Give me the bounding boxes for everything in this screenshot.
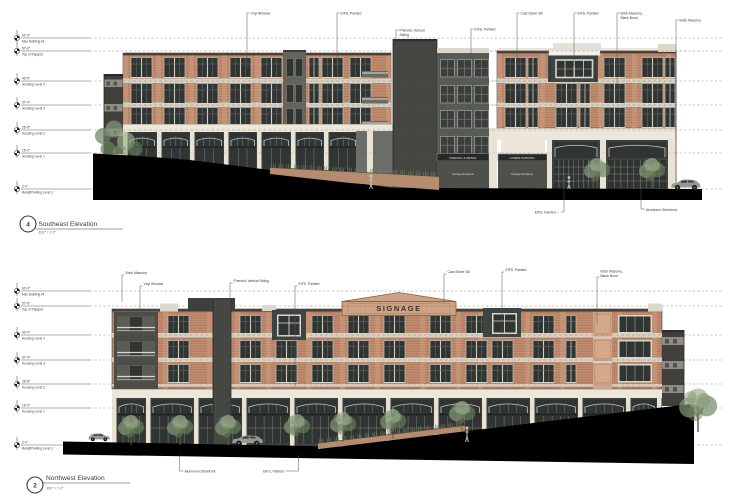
svg-text:3/32″ = 1′-0″: 3/32″ = 1′-0″ [46,487,64,491]
svg-text:2′-0″: 2′-0″ [22,441,29,445]
svg-text:Garage Entrance: Garage Entrance [452,172,474,176]
svg-text:Housing Level 2: Housing Level 2 [22,386,45,390]
svg-text:Brick Masonry: Brick Masonry [680,19,702,23]
svg-text:Housing Level 2: Housing Level 2 [22,132,45,136]
svg-text:Retail/Parking Level 1: Retail/Parking Level 1 [22,447,53,451]
svg-text:Northwest Elevation: Northwest Elevation [46,475,105,482]
svg-text:37′-4″: 37′-4″ [22,356,31,360]
svg-text:2′-0″: 2′-0″ [22,185,29,189]
svg-text:Black Bond: Black Bond [601,274,618,278]
svg-text:43′-0″: 43′-0″ [22,77,31,81]
svg-text:Aluminum Storefront: Aluminum Storefront [646,208,677,212]
svg-text:26′-8″: 26′-8″ [22,380,31,384]
svg-text:26′-8″: 26′-8″ [22,126,31,130]
svg-text:Cast Stone Sill: Cast Stone Sill [521,12,543,16]
svg-text:Housing Level 3: Housing Level 3 [22,362,45,366]
svg-text:EIFS, Painted: EIFS, Painted [341,12,362,16]
svg-text:Vnyl Window: Vnyl Window [251,12,271,16]
svg-text:43′-0″: 43′-0″ [22,331,31,335]
svg-text:60′-0″: 60′-0″ [22,287,31,291]
svg-text:EIFS, Painted: EIFS, Painted [578,12,599,16]
svg-text:Housing Level 4: Housing Level 4 [22,83,45,87]
svg-text:Brick Masonry,: Brick Masonry, [621,12,643,16]
svg-text:16′-0″: 16′-0″ [22,404,31,408]
svg-text:37′-4″: 37′-4″ [22,101,31,105]
svg-text:EIFS, Painted: EIFS, Painted [475,28,496,32]
svg-text:Black Bond: Black Bond [621,16,638,20]
svg-text:Garage Entrance: Garage Entrance [511,172,533,176]
svg-text:Vnyl Window: Vnyl Window [144,282,164,286]
svg-text:Retail/Parking Level 1: Retail/Parking Level 1 [22,191,53,195]
svg-text:2: 2 [33,483,37,490]
svg-text:EIFS, Painted: EIFS, Painted [506,268,527,272]
svg-text:Housing Level 1: Housing Level 1 [22,155,45,159]
svg-text:4: 4 [26,222,30,229]
svg-text:Brick Masonry: Brick Masonry [126,271,148,275]
svg-text:Brick Masonry,: Brick Masonry, [601,270,623,274]
svg-text:Max Building Ht: Max Building Ht [22,40,44,44]
svg-text:Phenolic Vertical Siding: Phenolic Vertical Siding [234,279,270,283]
svg-text:EIFS, Painted ←: EIFS, Painted ← [535,211,560,215]
svg-text:PARKING & RETAIL: PARKING & RETAIL [449,156,477,160]
svg-text:Cast Stone Sill: Cast Stone Sill [448,270,470,274]
svg-text:3/32″ = 1′-0″: 3/32″ = 1′-0″ [39,231,57,235]
svg-text:57′-6″: 57′-6″ [22,47,31,51]
svg-text:SIGNAGE: SIGNAGE [376,304,421,313]
svg-text:Housing Level 4: Housing Level 4 [22,337,45,341]
svg-text:Phenolic Vertical: Phenolic Vertical [400,29,425,33]
svg-text:EIFS, Painted: EIFS, Painted [263,470,284,474]
svg-text:Top of Parapet: Top of Parapet [22,53,43,57]
svg-text:Aluminum Storefront: Aluminum Storefront [185,470,216,474]
svg-text:Max Building Ht: Max Building Ht [22,293,44,297]
svg-text:EIFS, Painted: EIFS, Painted [299,282,320,286]
svg-text:LOWER PARKING: LOWER PARKING [509,156,535,160]
svg-text:Southeast Elevation: Southeast Elevation [39,221,98,228]
svg-text:16′-0″: 16′-0″ [22,149,31,153]
svg-text:Siding: Siding [400,33,410,37]
svg-text:Top of Parapet: Top of Parapet [22,308,43,312]
svg-text:60′-0″: 60′-0″ [22,34,31,38]
svg-text:Housing Level 3: Housing Level 3 [22,107,45,111]
svg-text:Housing Level 1: Housing Level 1 [22,410,45,414]
svg-text:57′-6″: 57′-6″ [22,302,31,306]
